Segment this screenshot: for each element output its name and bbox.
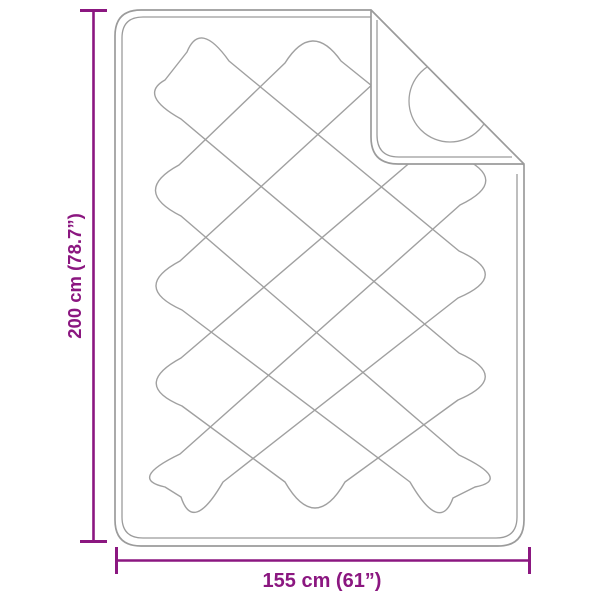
blanket-diagram-svg: 200 cm (78.7”) 155 cm (61”): [0, 0, 600, 600]
folded-corner-flap: [371, 10, 524, 164]
product-dimension-diagram: 200 cm (78.7”) 155 cm (61”): [0, 0, 600, 600]
height-dimension-label: 200 cm (78.7”): [64, 213, 85, 338]
blanket-body-outline: [115, 10, 524, 546]
width-dimension-label: 155 cm (61”): [263, 570, 382, 592]
